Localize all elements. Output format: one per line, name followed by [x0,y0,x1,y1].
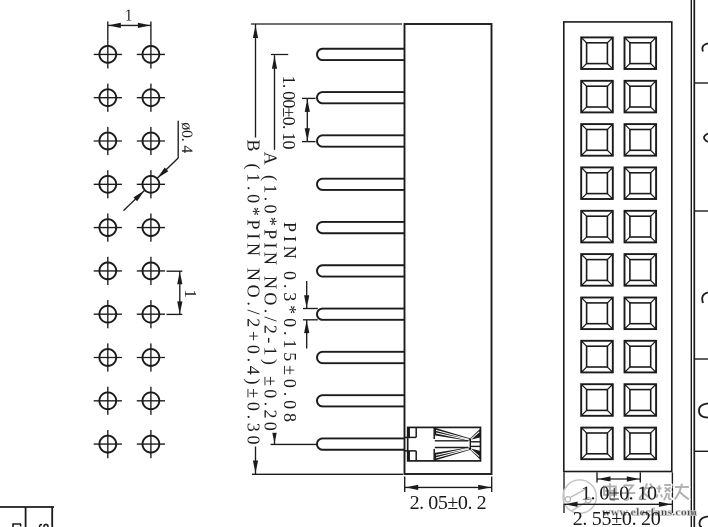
svg-text:1: 1 [125,6,133,25]
svg-text:ø0. 4: ø0. 4 [178,122,195,153]
svg-text:1. 0±0. 10: 1. 0±0. 10 [581,483,657,505]
svg-text:1. 00±0. 10: 1. 00±0. 10 [279,76,299,150]
svg-text:2. 05±0. 2: 2. 05±0. 2 [410,492,487,514]
svg-text:2. 55±0. 20: 2. 55±0. 20 [573,508,661,527]
svg-text:PIN 0.3*0.15±0.08: PIN 0.3*0.15±0.08 [280,222,300,422]
svg-text:1: 1 [181,290,200,299]
